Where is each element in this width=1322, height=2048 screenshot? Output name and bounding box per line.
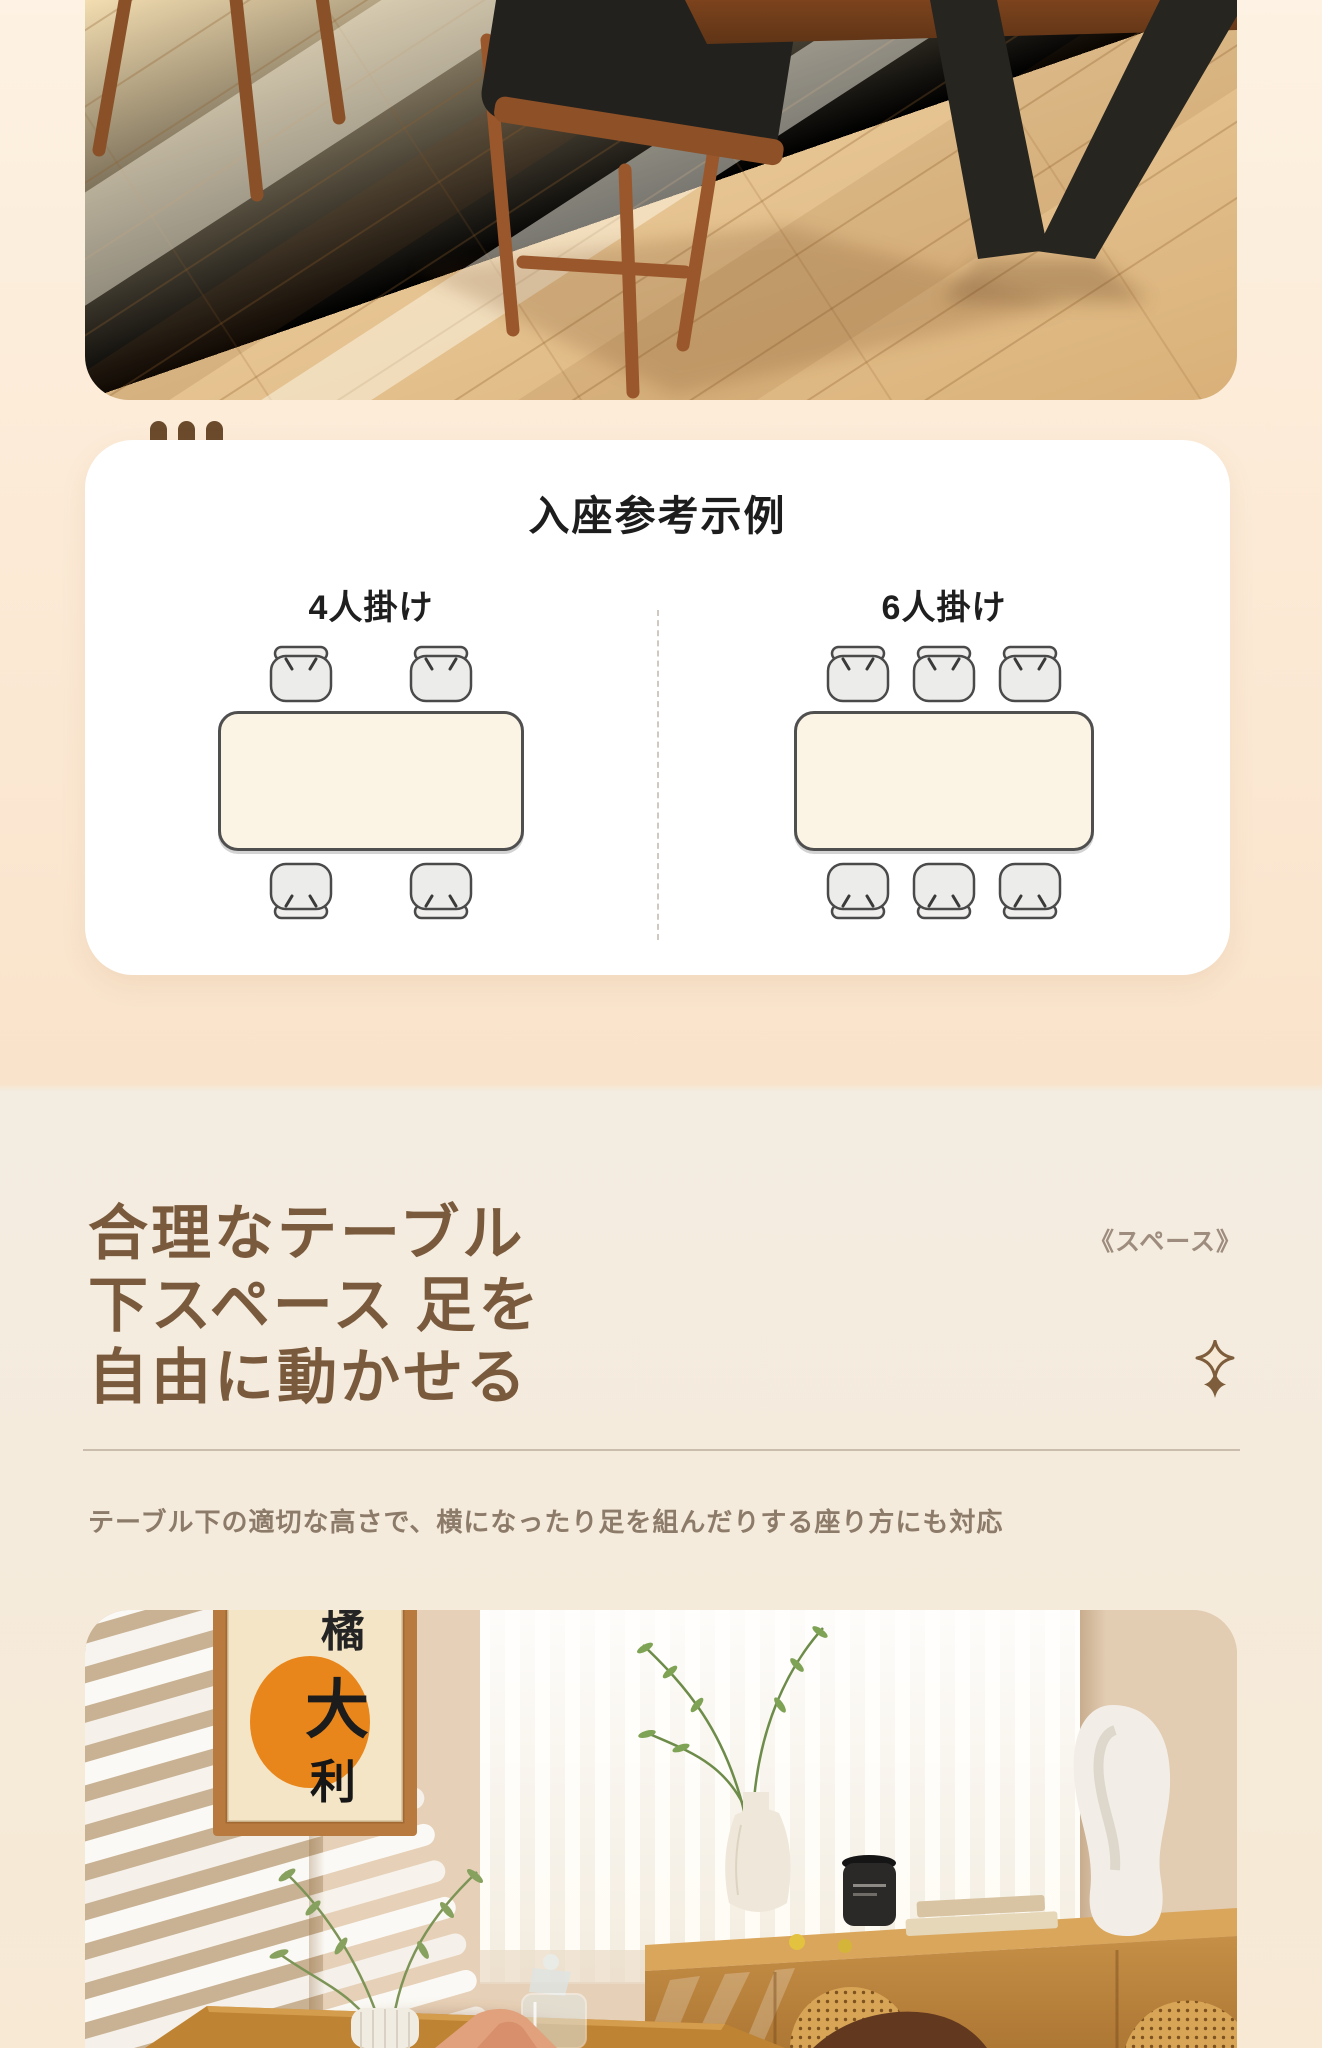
chair-top-view-icon	[268, 645, 334, 703]
diagram-label-4: 4人掛け	[85, 580, 657, 629]
chair-top-view-icon	[268, 862, 334, 920]
chair-top-view-icon	[911, 645, 977, 703]
chair-top-view-icon	[825, 645, 891, 703]
chair-top-view-icon	[911, 862, 977, 920]
chair-row-bottom	[85, 862, 657, 920]
seating-reference-card: 入座参考示例 4人掛け 6人掛け	[85, 440, 1230, 975]
chair-top-view-icon	[408, 645, 474, 703]
chair-row-top	[658, 645, 1230, 703]
poster-char-1: 橘	[321, 1610, 365, 1656]
diagram-label-6: 6人掛け	[658, 580, 1230, 629]
poster: 橘 大 利	[213, 1610, 417, 1836]
chair-row-top	[85, 645, 657, 703]
feature-title: 合理なテーブル 下スペース 足を 自由に動かせる	[88, 1198, 541, 1414]
fruit	[789, 1934, 805, 1950]
chair-top-view-icon	[408, 862, 474, 920]
product-detail-page: 入座参考示例 4人掛け 6人掛け 合理なテーブル 下スペース 足を 自由に動かせ…	[0, 0, 1322, 2048]
ribbed-vase	[351, 2008, 419, 2048]
sparkle-icon	[1192, 1340, 1238, 1403]
table-top-view	[794, 711, 1094, 851]
table-top-view	[218, 711, 524, 851]
feature-title-line1: 合理なテーブル	[88, 1200, 525, 1267]
hero-photo-scene	[85, 0, 1237, 400]
chair-top-view-icon	[825, 862, 891, 920]
diagram-4-seats: 4人掛け	[85, 440, 657, 975]
feature-title-line2: 下スペース 足を	[88, 1272, 541, 1339]
feature-description: テーブル下の適切な高さで、横になったり足を組んだりする座り方にも対応	[88, 1502, 1188, 1539]
room-photo-interior: 橘 大 利	[85, 1610, 1237, 2048]
fruit	[838, 1939, 852, 1953]
room-photo-scene: 橘 大 利	[85, 1610, 1237, 2048]
diagram-6-seats: 6人掛け	[658, 440, 1230, 975]
chair-top-view-icon	[997, 645, 1063, 703]
feature-tag: 《スペース》	[1020, 1222, 1242, 1258]
feature-title-line3: 自由に動かせる	[88, 1344, 529, 1411]
chair-row-bottom	[658, 862, 1230, 920]
section-divider	[83, 1449, 1240, 1451]
hero-photo-dining-table	[85, 0, 1237, 400]
chair-top-view-icon	[997, 862, 1063, 920]
poster-char-3: 利	[310, 1756, 356, 1808]
poster-char-2: 大	[305, 1674, 369, 1746]
white-vase	[725, 1808, 790, 1912]
